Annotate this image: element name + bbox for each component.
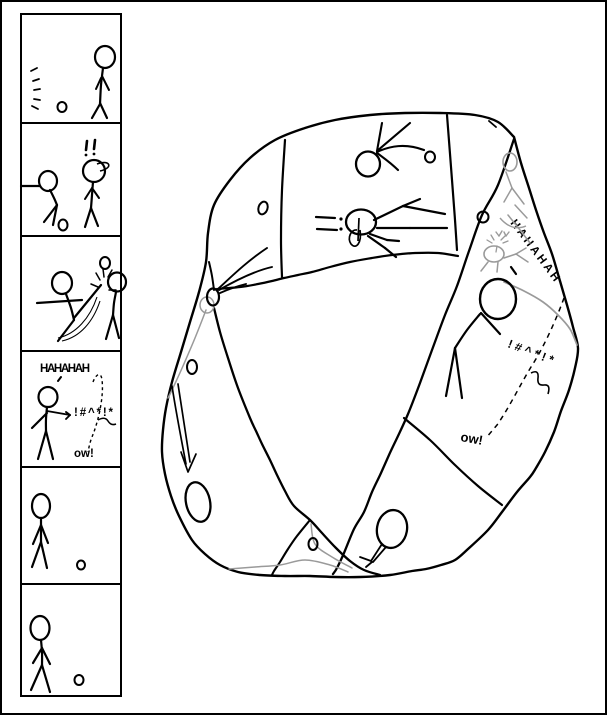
svg-text:ow!: ow! xyxy=(74,448,94,460)
svg-text:HAHAHAH: HAHAHAH xyxy=(40,363,90,375)
svg-text:!#^*!*: !#^*!* xyxy=(74,407,114,419)
